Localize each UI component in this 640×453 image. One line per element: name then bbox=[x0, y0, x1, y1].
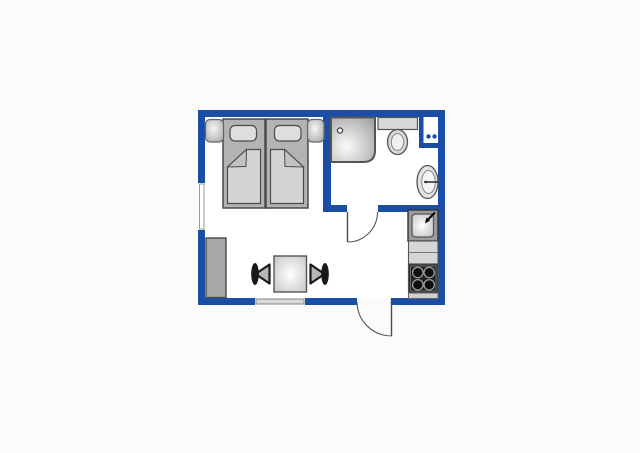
wall-bottom-mid bbox=[305, 298, 357, 305]
wall-bottom-left bbox=[198, 298, 255, 305]
burner-top-right bbox=[424, 267, 434, 277]
pillow-right bbox=[275, 126, 302, 142]
toilet-cistern bbox=[378, 118, 418, 130]
wall-top bbox=[198, 110, 445, 117]
nightstand-right bbox=[308, 120, 325, 143]
utility-dot-2 bbox=[432, 134, 436, 138]
window-left-icon bbox=[200, 184, 205, 229]
utility-box bbox=[419, 117, 438, 148]
shower-drain-icon bbox=[337, 128, 342, 133]
wall-left-lower bbox=[198, 230, 205, 305]
wardrobe bbox=[206, 238, 226, 298]
wall-left-upper bbox=[198, 110, 205, 183]
window-bottom-icon bbox=[256, 299, 304, 304]
utility-box-interior bbox=[423, 117, 438, 143]
stove-base-strip bbox=[409, 293, 439, 299]
utility-box-bottom-bar bbox=[419, 143, 438, 148]
chair-left-backrest bbox=[251, 263, 259, 285]
kitchenette bbox=[408, 210, 438, 299]
nightstand-left bbox=[206, 120, 224, 143]
burner-bottom-right bbox=[424, 280, 434, 290]
dining-table bbox=[274, 256, 307, 292]
floor-plan-drawing bbox=[0, 0, 640, 453]
burner-bottom-left bbox=[413, 280, 423, 290]
burner-top-left bbox=[413, 267, 423, 277]
floor-plan-canvas bbox=[0, 0, 640, 453]
shower-tray bbox=[331, 118, 375, 163]
wall-bathroom-left-stub bbox=[323, 205, 347, 212]
utility-dot-1 bbox=[426, 134, 430, 138]
wall-bottom-right bbox=[392, 298, 445, 305]
entrance-door-swing-arc bbox=[357, 302, 392, 336]
double-bed bbox=[223, 119, 308, 208]
pillow-left bbox=[230, 126, 257, 142]
toilet-bowl-inner bbox=[391, 134, 403, 151]
washbasin-tap-knob bbox=[425, 181, 428, 184]
chair-right-backrest bbox=[321, 263, 329, 285]
